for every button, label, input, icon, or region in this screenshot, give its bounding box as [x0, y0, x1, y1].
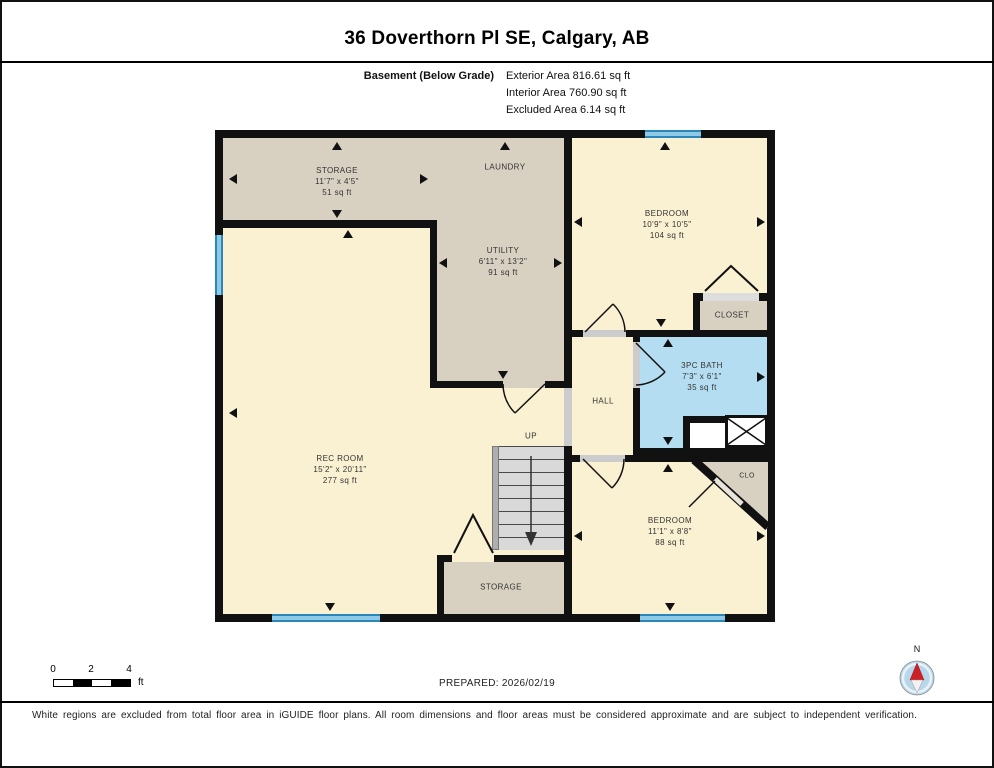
room-dims: 7'3" x 6'1"	[681, 372, 723, 383]
excluded-area: Excluded Area 6.14 sq ft	[506, 104, 625, 116]
room-area: 104 sq ft	[642, 230, 691, 241]
room-area: 88 sq ft	[648, 537, 692, 548]
scale-tick-4: 4	[123, 664, 135, 675]
header-divider	[0, 61, 994, 63]
room-area: 91 sq ft	[479, 267, 527, 278]
room-name: 3PC BATH	[681, 361, 723, 372]
prepared-date: PREPARED: 2026/02/19	[0, 678, 994, 689]
room-area: 277 sq ft	[313, 475, 366, 486]
label-bedroom-bottom: BEDROOM 11'1" x 8'8" 88 sq ft	[648, 516, 692, 548]
room-name: CLOSET	[715, 311, 749, 322]
room-dims: 15'2" x 20'11"	[313, 465, 366, 476]
label-bath: 3PC BATH 7'3" x 6'1" 35 sq ft	[681, 361, 723, 393]
door-swing-icons	[503, 304, 665, 488]
room-name: CLO	[739, 471, 755, 480]
scale-tick-0: 0	[47, 664, 59, 675]
room-name: HALL	[592, 397, 614, 408]
room-dims: 11'1" x 8'8"	[648, 527, 692, 538]
exterior-area: Exterior Area 816.61 sq ft	[506, 70, 630, 82]
room-name: LAUNDRY	[485, 163, 526, 174]
label-up: UP	[525, 432, 537, 443]
interior-area: Interior Area 760.90 sq ft	[506, 87, 626, 99]
label-bedroom-top: BEDROOM 10'9" x 10'5" 104 sq ft	[642, 209, 691, 241]
label-hall: HALL	[592, 397, 614, 408]
room-dims: 10'9" x 10'5"	[642, 220, 691, 231]
scale-tick-2: 2	[85, 664, 97, 675]
page-title: 36 Doverthorn Pl SE, Calgary, AB	[0, 28, 994, 50]
label-rec-room: REC ROOM 15'2" x 20'11" 277 sq ft	[313, 454, 366, 486]
stairs-up-label: UP	[525, 432, 537, 443]
folding-door-icons	[454, 266, 758, 553]
compass-north-label: N	[895, 644, 939, 654]
room-name: UTILITY	[479, 246, 527, 257]
disclaimer-text: White regions are excluded from total fl…	[32, 710, 962, 721]
label-storage-top: STORAGE 11'7" x 4'5" 51 sq ft	[315, 166, 359, 198]
room-name: STORAGE	[480, 583, 522, 594]
room-name: REC ROOM	[313, 454, 366, 465]
room-area: 51 sq ft	[315, 187, 359, 198]
label-closet: CLOSET	[715, 311, 749, 322]
compass-rose-icon	[895, 655, 939, 701]
floor-label: Basement (Below Grade)	[0, 70, 494, 82]
room-name: STORAGE	[315, 166, 359, 177]
footer-divider	[0, 701, 994, 703]
label-storage-bottom: STORAGE	[480, 583, 522, 594]
floor-plan: STORAGE 11'7" x 4'5" 51 sq ft LAUNDRY UT…	[215, 130, 775, 622]
stairs-direction-arrow	[525, 456, 537, 546]
compass-icon: N	[895, 644, 939, 702]
room-name: BEDROOM	[642, 209, 691, 220]
label-laundry: LAUNDRY	[485, 163, 526, 174]
room-name: BEDROOM	[648, 516, 692, 527]
excluded-x-icon	[727, 418, 766, 445]
floor-plan-page: 36 Doverthorn Pl SE, Calgary, AB Basemen…	[0, 0, 994, 768]
room-area: 35 sq ft	[681, 382, 723, 393]
label-utility: UTILITY 6'11" x 13'2" 91 sq ft	[479, 246, 527, 278]
label-clo: CLO	[739, 471, 755, 480]
room-dims: 6'11" x 13'2"	[479, 257, 527, 268]
clo-closet	[689, 460, 768, 528]
room-dims: 11'7" x 4'5"	[315, 177, 359, 188]
